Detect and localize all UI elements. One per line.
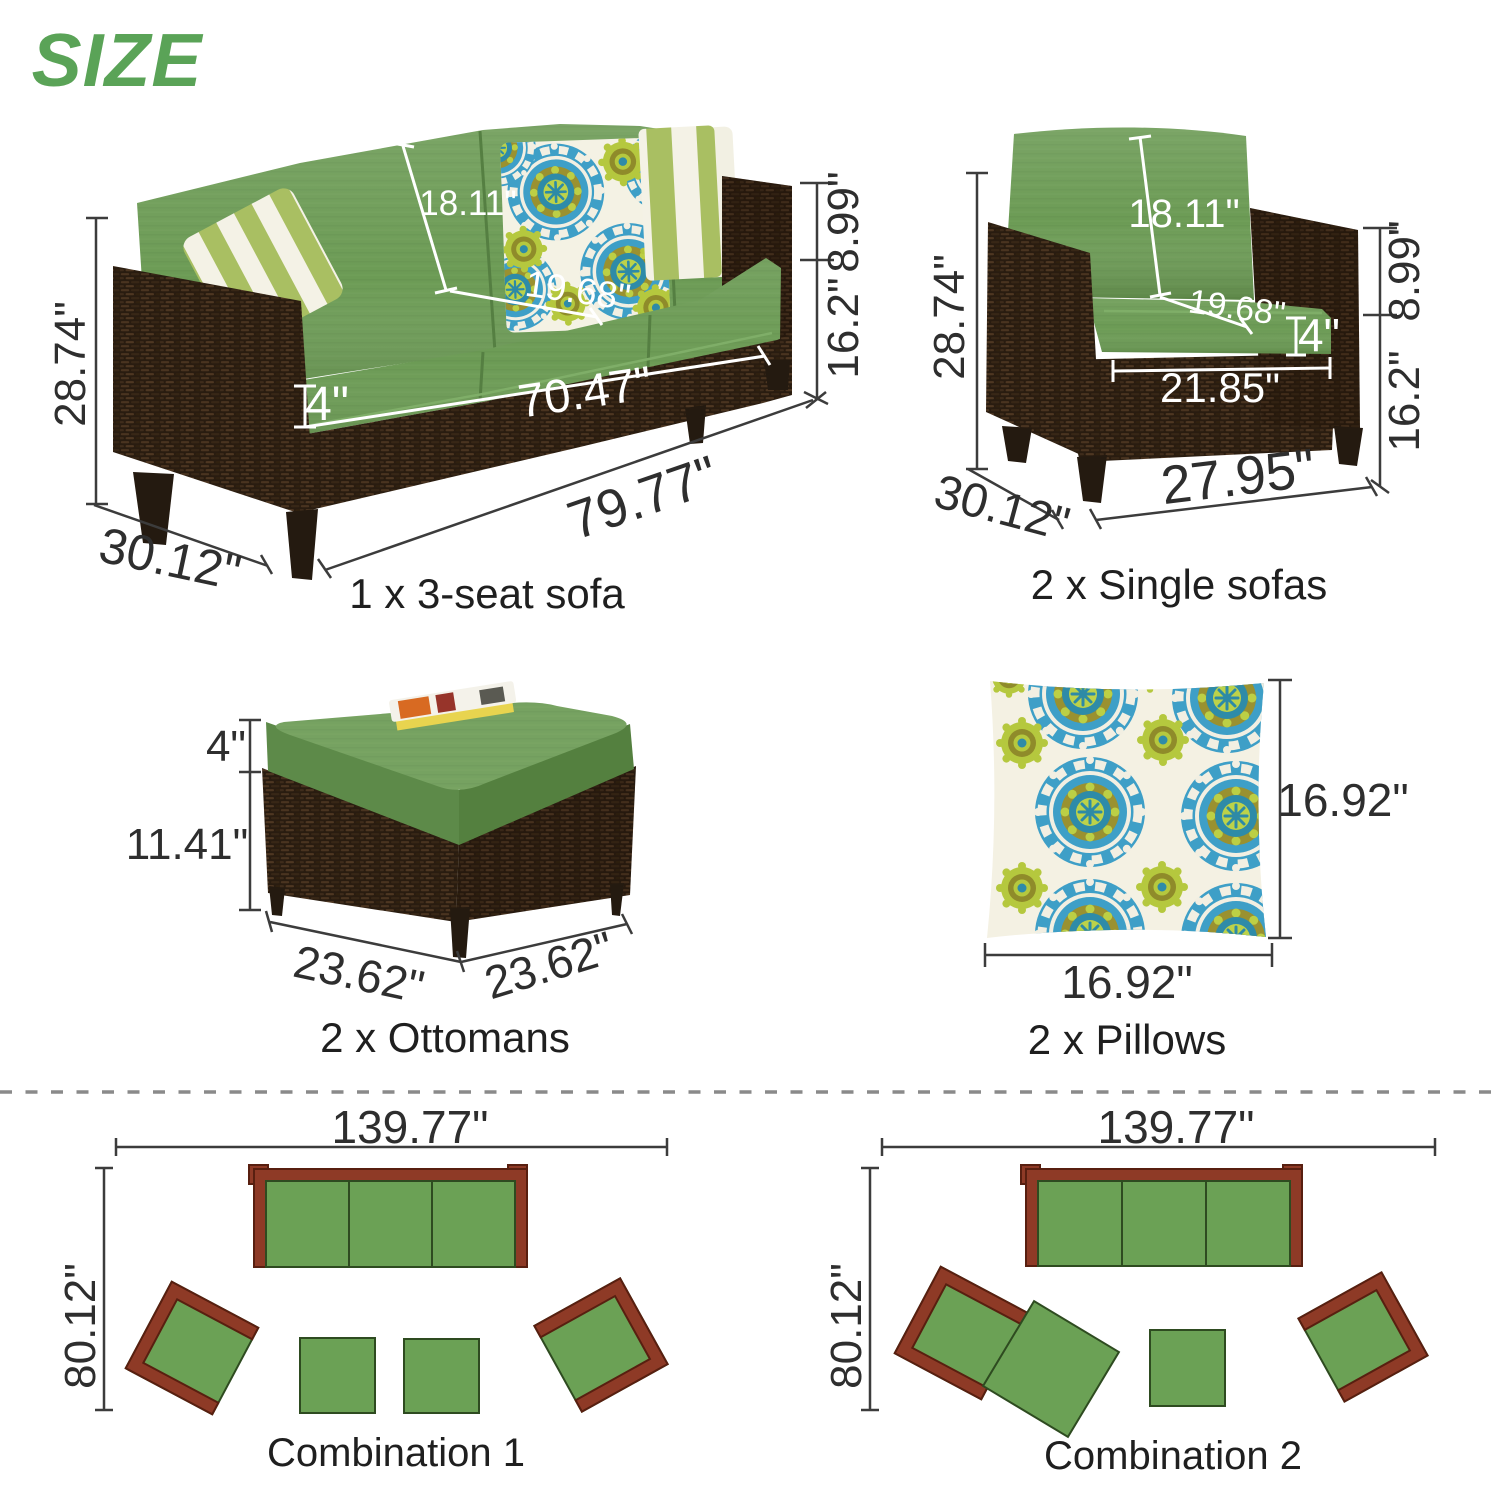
svg-text:8.99": 8.99" bbox=[819, 171, 868, 272]
svg-text:30.12": 30.12" bbox=[94, 517, 245, 601]
svg-text:79.77": 79.77" bbox=[560, 445, 725, 552]
svg-text:30.12": 30.12" bbox=[929, 465, 1075, 552]
svg-text:18.11": 18.11" bbox=[419, 184, 516, 223]
svg-text:1 x 3-seat sofa: 1 x 3-seat sofa bbox=[349, 570, 625, 617]
svg-text:2 x Single sofas: 2 x Single sofas bbox=[1031, 561, 1328, 608]
svg-text:21.85": 21.85" bbox=[1160, 364, 1280, 411]
svg-text:4": 4" bbox=[1298, 309, 1340, 361]
svg-text:23.62": 23.62" bbox=[289, 935, 428, 1013]
svg-text:2 x Ottomans: 2 x Ottomans bbox=[320, 1014, 570, 1061]
svg-text:2 x Pillows: 2 x Pillows bbox=[1028, 1016, 1226, 1063]
svg-text:8.99": 8.99" bbox=[1380, 220, 1429, 321]
svg-text:16.92": 16.92" bbox=[1061, 956, 1192, 1008]
svg-text:28.74": 28.74" bbox=[46, 301, 95, 427]
svg-text:16.2": 16.2" bbox=[1380, 350, 1429, 451]
svg-text:16.92": 16.92" bbox=[1277, 774, 1408, 826]
svg-text:4": 4" bbox=[305, 378, 349, 431]
svg-text:80.12": 80.12" bbox=[822, 1263, 871, 1389]
svg-text:16.2": 16.2" bbox=[819, 277, 868, 378]
svg-text:80.12": 80.12" bbox=[56, 1263, 105, 1389]
svg-text:139.77": 139.77" bbox=[1097, 1101, 1254, 1153]
svg-text:11.41": 11.41" bbox=[126, 820, 248, 869]
svg-text:Combination 1: Combination 1 bbox=[267, 1431, 525, 1475]
svg-text:23.62": 23.62" bbox=[479, 921, 620, 1009]
svg-text:SIZE: SIZE bbox=[32, 18, 204, 102]
svg-text:139.77": 139.77" bbox=[331, 1101, 488, 1153]
svg-text:Combination 2: Combination 2 bbox=[1044, 1434, 1302, 1478]
svg-text:4": 4" bbox=[206, 722, 246, 771]
svg-text:28.74": 28.74" bbox=[925, 254, 974, 380]
svg-text:18.11": 18.11" bbox=[1128, 192, 1239, 236]
